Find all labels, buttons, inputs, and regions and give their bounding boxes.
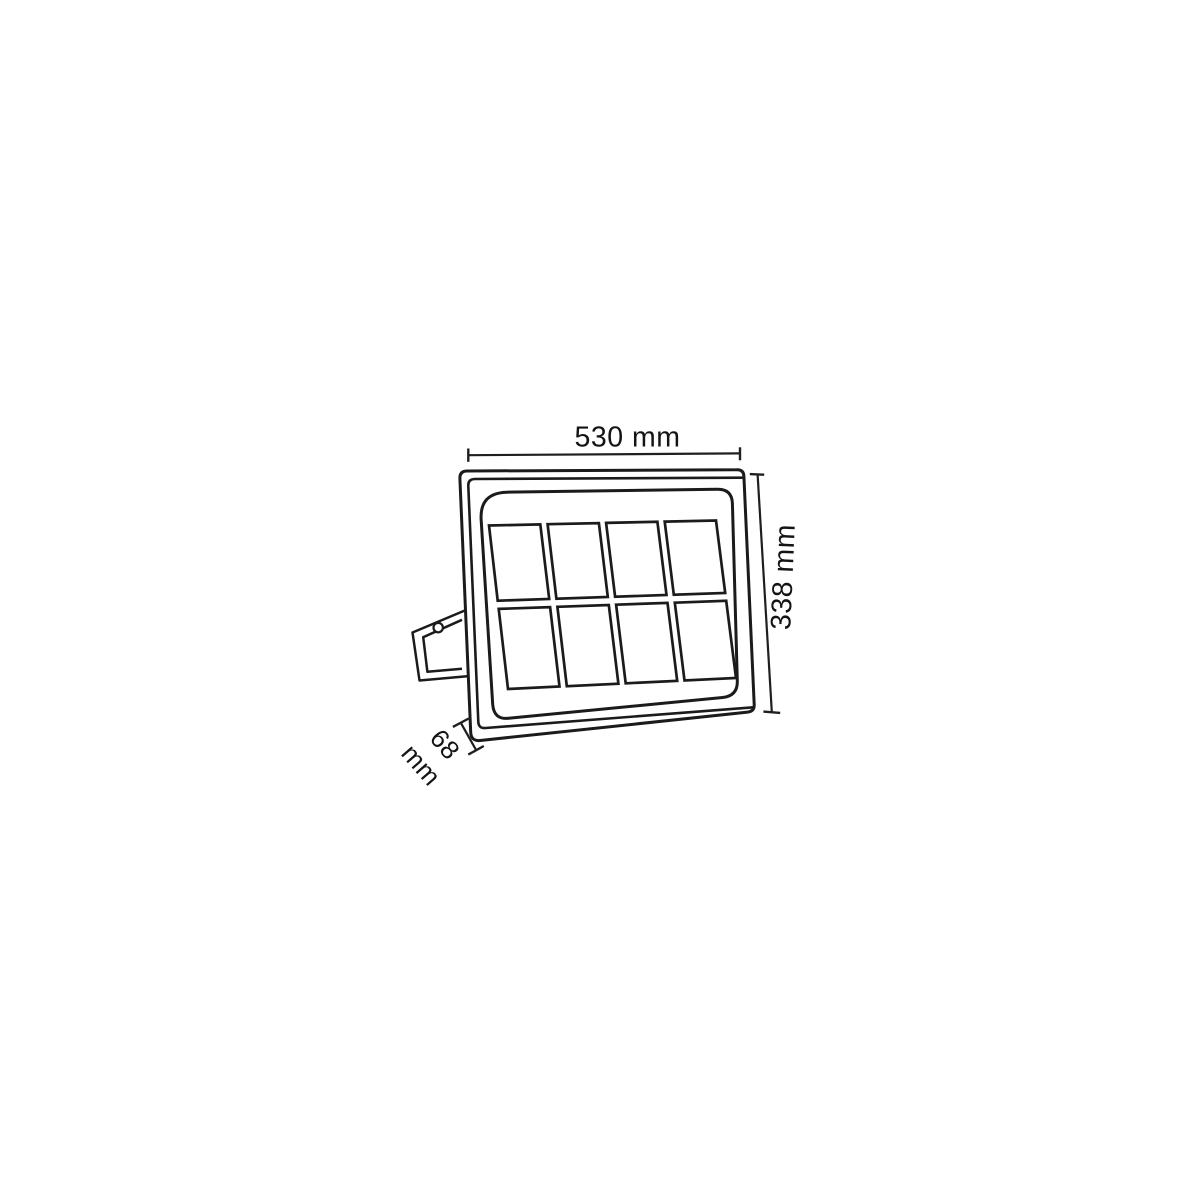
led-cell-r1c4 <box>665 521 726 595</box>
led-cell-r1c2 <box>548 523 608 599</box>
width-dimension-label: 530 mm <box>575 422 681 454</box>
width-dimension-line <box>468 453 740 455</box>
led-cell-r2c2 <box>557 605 618 686</box>
dimension-diagram-page: 530 mm 338 mm 68 mm <box>0 0 1200 1200</box>
floodlight-body <box>460 470 754 741</box>
depth-dimension-tick-top <box>453 719 469 727</box>
height-dimension: 338 mm <box>750 474 802 713</box>
floodlight-drawing: 530 mm 338 mm 68 mm <box>0 0 1200 1200</box>
led-cell-r2c3 <box>616 603 677 683</box>
height-dimension-label: 338 mm <box>765 523 802 630</box>
mounting-bracket <box>413 610 468 681</box>
led-cell-r1c3 <box>606 522 666 597</box>
led-cell-r2c1 <box>499 607 560 689</box>
led-cell-r2c4 <box>675 601 736 681</box>
height-dimension-tick-bottom <box>763 712 780 713</box>
width-dimension: 530 mm <box>468 422 740 462</box>
height-dimension-tick-top <box>750 474 764 475</box>
led-cell-r1c1 <box>489 524 549 600</box>
bracket-pivot-hole <box>434 623 443 632</box>
depth-dimension-tick-bottom <box>468 746 484 755</box>
